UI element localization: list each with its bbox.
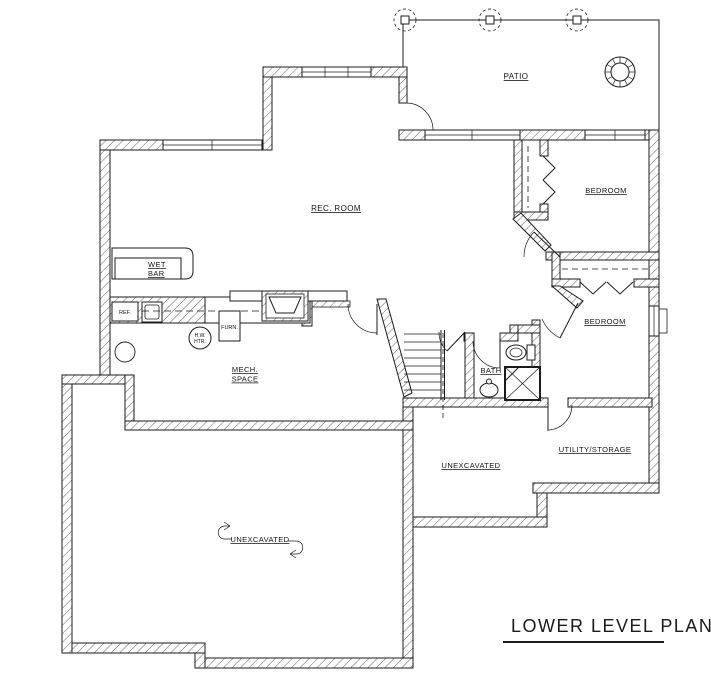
wall-segment (514, 140, 522, 220)
wall-segment (403, 398, 413, 668)
wall-segment (568, 398, 652, 407)
wall-segment (634, 279, 659, 287)
wall-segment (100, 140, 110, 378)
wall-segment (533, 483, 659, 493)
room-label-unexcavated-lower: UNEXCAVATED (231, 535, 290, 544)
label-refrigerator: REF. (119, 310, 131, 316)
label-furnace: FURN. (221, 325, 238, 331)
label-wet-bar-line1: WET (148, 260, 166, 269)
label-wet-bar-line2: BAR (148, 269, 165, 278)
wall-segment (263, 67, 272, 150)
wall-segment (540, 140, 548, 156)
page-title: LOWER LEVEL PLAN (511, 616, 711, 636)
window (302, 67, 371, 77)
wall-segment (308, 301, 350, 307)
wall-segment (546, 252, 659, 260)
wall-segment (500, 333, 518, 341)
wall-segment (537, 493, 547, 517)
room-label-bedroom-1: BEDROOM (585, 186, 627, 195)
room-label-rec-room: REC. ROOM (311, 204, 361, 213)
window (585, 130, 645, 140)
wall-segment (540, 204, 548, 212)
corner-shower-icon (505, 367, 540, 400)
window (425, 130, 520, 140)
column-marker (486, 16, 494, 24)
room-label-utility-storage: UTILITY/STORAGE (559, 445, 632, 454)
room-label-bedroom-2: BEDROOM (584, 317, 626, 326)
wall-segment (371, 67, 407, 77)
toilet-icon (506, 345, 535, 360)
wall-segment (263, 67, 302, 77)
room-label-unexcavated-mid: UNEXCAVATED (442, 461, 501, 470)
floor-plan-sheet: PATIO REC. ROOM WET BAR REF. FURN. H.W. … (0, 0, 711, 684)
column-marker (573, 16, 581, 24)
room-label-bath: BATH (480, 366, 501, 375)
room-label-mech-space-line1: MECH. (232, 365, 258, 374)
wall-segment (465, 333, 474, 398)
wall-segment (399, 130, 425, 140)
wall-segment (62, 375, 134, 384)
wall-segment (649, 336, 659, 493)
room-label-patio: PATIO (504, 72, 529, 81)
room-label-mech-space-line2: SPACE (232, 375, 259, 384)
wall-segment (125, 421, 413, 430)
window (163, 140, 262, 150)
wall-segment (399, 77, 407, 103)
label-water-heater-line2: HTR. (194, 339, 206, 345)
column-marker (401, 16, 409, 24)
wall-segment (203, 658, 413, 668)
wall-segment (520, 130, 585, 140)
wall-segment (62, 375, 72, 653)
wall-segment (100, 140, 163, 150)
wall-segment (62, 643, 205, 653)
floor-plan-drawing: PATIO REC. ROOM WET BAR REF. FURN. H.W. … (0, 0, 711, 684)
wall-segment (403, 517, 547, 527)
bar-sink (262, 291, 308, 321)
